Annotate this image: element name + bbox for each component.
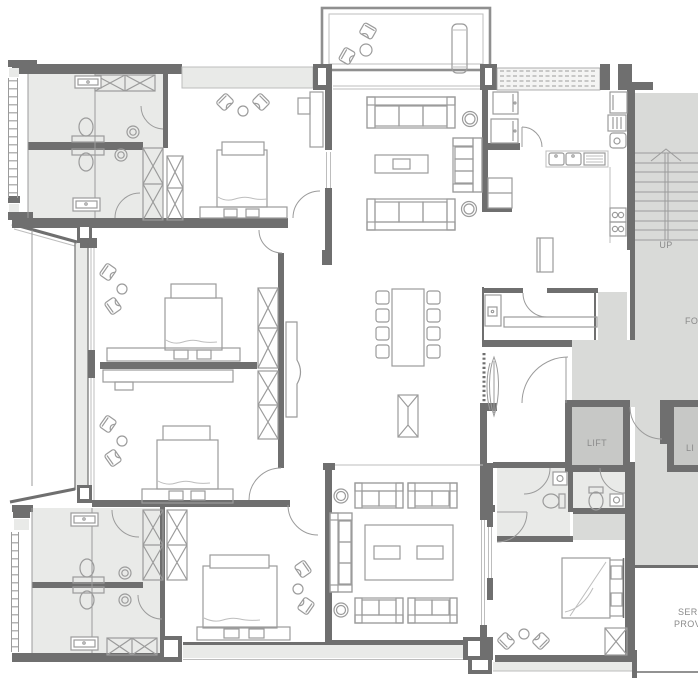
armchair [252, 93, 270, 111]
console [286, 322, 301, 417]
bed [107, 284, 240, 361]
armchair [294, 560, 312, 578]
door-arc [249, 468, 281, 500]
bedroom-top-left [200, 92, 323, 218]
dresser [310, 92, 323, 147]
door-arc [293, 191, 320, 218]
vanity [75, 76, 101, 88]
vanity [73, 198, 100, 211]
hall-door-arc [288, 505, 318, 535]
door-arc [522, 127, 542, 147]
dining-room [286, 289, 440, 437]
side-table [519, 629, 529, 639]
side-table [462, 202, 477, 217]
bedroom-middle-upper [99, 230, 282, 368]
stove [610, 208, 626, 236]
bed [562, 558, 624, 618]
sofa [408, 483, 457, 508]
side-table [117, 436, 127, 446]
lift-secondary-label: LI [686, 443, 694, 453]
service-label-line1: SER [678, 607, 698, 617]
coffee-table [365, 525, 453, 580]
runner-bench [398, 395, 418, 437]
stairs-up-label: UP [659, 240, 672, 250]
wash-basin [610, 133, 626, 148]
side-table [293, 584, 303, 594]
balcony-wall [322, 8, 490, 70]
bed [197, 555, 290, 640]
washbasin-counter [485, 295, 501, 326]
sofa [453, 138, 482, 192]
shaft-bathroom [573, 512, 625, 540]
armchair [99, 415, 117, 433]
vanity [71, 637, 98, 650]
lift-cab-secondary [674, 407, 698, 465]
armchair [104, 449, 122, 467]
sofa [355, 483, 403, 508]
side-table [238, 106, 248, 116]
armchair [297, 597, 315, 615]
wardrobe [258, 371, 278, 439]
coffee-table [375, 155, 428, 173]
lift-cab [572, 407, 623, 465]
balcony-top [322, 8, 490, 73]
desk [103, 370, 233, 390]
side-table [117, 284, 127, 294]
foyer-label: FO [685, 316, 698, 326]
armchair [497, 632, 515, 650]
ledge-band-top [182, 67, 313, 88]
kitchen [488, 92, 627, 272]
door-arc [523, 293, 547, 317]
door-arc [259, 230, 282, 253]
washbasin [553, 472, 567, 485]
bed [200, 142, 287, 218]
floor-plan-page: UP FO LIFT LI SER PROV [0, 0, 698, 678]
bedroom-bottom-left [197, 555, 315, 640]
bed [142, 426, 233, 503]
counter-cabinet [537, 238, 553, 272]
bathroom-area-bottom-left [32, 508, 160, 653]
vanity [71, 513, 98, 526]
armchair [99, 263, 117, 281]
cooktop-grill [608, 115, 626, 131]
kitchen-sink [546, 151, 608, 167]
dining-chairs-right [427, 291, 440, 358]
sofa [355, 598, 403, 623]
shaft-kitchen [598, 292, 627, 340]
side-table [334, 489, 348, 503]
sofa [408, 598, 457, 623]
wardrobe [258, 288, 278, 368]
dining-table [392, 289, 424, 366]
floor-plan: UP FO LIFT LI SER PROV [0, 0, 698, 678]
appliance [491, 119, 518, 143]
armchair [216, 93, 234, 111]
desk-chair [298, 98, 310, 114]
armchair [532, 632, 550, 650]
counter-cabinet [488, 178, 512, 208]
window-bottom-left [12, 532, 19, 652]
wardrobe [167, 510, 187, 580]
tall-cabinet [610, 92, 627, 113]
family-room [330, 483, 457, 623]
sofa [367, 199, 455, 230]
pier-left [75, 243, 88, 490]
armchair [104, 297, 122, 315]
service-label-line2: PROV [674, 619, 698, 629]
powder-room [485, 293, 597, 327]
side-table [334, 603, 348, 617]
wardrobe [167, 156, 183, 220]
balcony-strip-bottom-right [493, 662, 632, 671]
living-room [367, 97, 482, 230]
counter [504, 317, 597, 327]
balcony-strip-bottom [183, 645, 463, 658]
dining-chairs-left [376, 291, 389, 358]
entrance-door-arc [522, 357, 568, 403]
sofa [330, 513, 352, 592]
wardrobe [605, 628, 627, 655]
sofa [367, 97, 455, 128]
window-top-left [9, 78, 18, 198]
side-table [463, 112, 478, 127]
washbasin [610, 494, 623, 506]
lift-label: LIFT [587, 438, 607, 448]
refrigerator [493, 92, 518, 114]
